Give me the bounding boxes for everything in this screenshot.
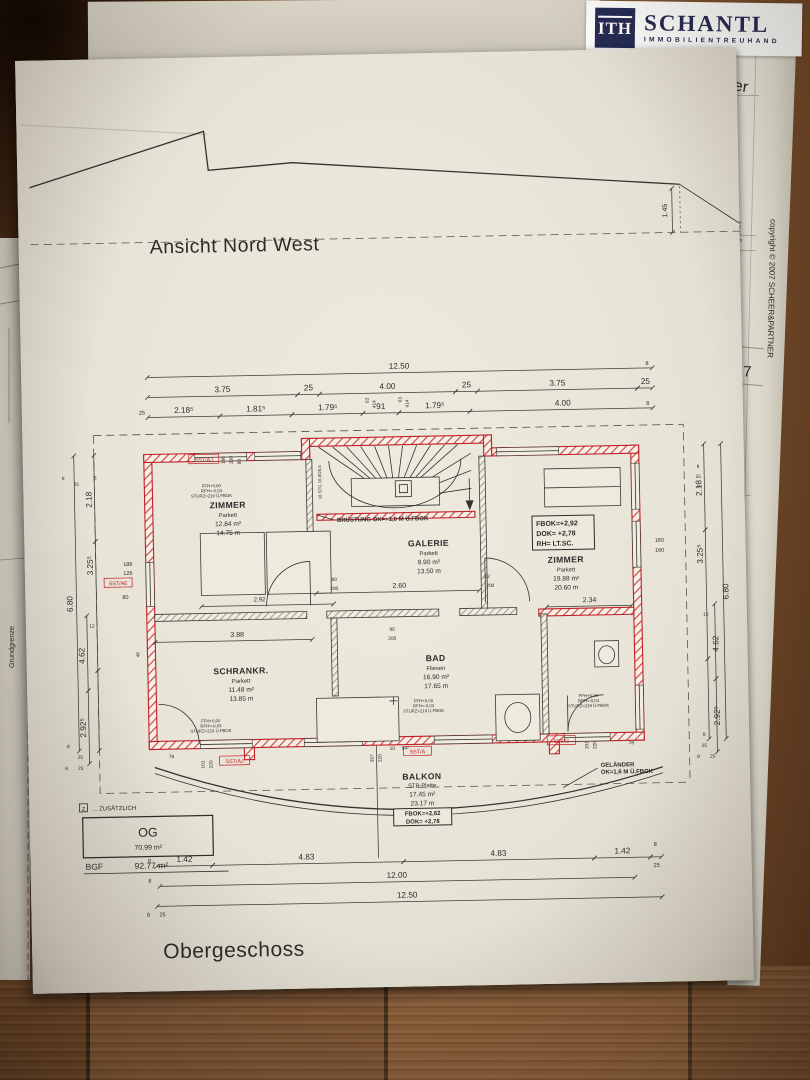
summary-bgf-label: BGF — [85, 861, 103, 871]
dim-label: 1.79⁵ — [425, 401, 445, 410]
dim-label: 25 — [139, 411, 145, 417]
summary-header: ... ZUSÄTZLICH — [92, 805, 136, 813]
dim-label: 25 — [702, 743, 708, 749]
right-dimensions: 6.80 2.18 3.25⁵ 12 4.62 2.92⁵ 8 25 8 8 2… — [653, 443, 734, 760]
area-summary: Z ... ZUSÄTZLICH OG 70.99 m² BGF 92.77 m… — [79, 801, 228, 874]
floor-plan-sheet: 1.45 Ansicht Nord West 12.50 3.75 25 4.0… — [15, 47, 754, 994]
level-box-line: DOK= +2,78 — [536, 530, 576, 538]
dim-label: 25 — [78, 755, 84, 761]
room-name: BAD — [426, 653, 446, 663]
dim-label: 8 — [65, 766, 68, 772]
dim-label: 414 — [405, 399, 411, 407]
dim-label: 3.75 — [214, 385, 231, 394]
dim-label: 6.80 — [65, 596, 74, 613]
room-finish: Parkett — [219, 513, 238, 519]
dim-label: 8 — [654, 842, 657, 848]
plan-drawing: 1.45 Ansicht Nord West 12.50 3.75 25 4.0… — [15, 47, 754, 994]
room-finish: Fliesen — [426, 666, 445, 672]
balkon-box-line: DOK= +2,78 — [406, 819, 440, 826]
dim-label: 160 — [655, 548, 664, 554]
dim-label: 1.81⁵ — [246, 404, 266, 413]
floor-title: Obergeschoss — [163, 938, 305, 964]
elevation-outline: 1.45 — [29, 121, 740, 245]
dim-label: 8 — [697, 464, 700, 470]
dim-label: 8 — [697, 484, 700, 490]
dim-label: 4.62 — [77, 647, 86, 664]
wall-tag: SST/A — [410, 749, 426, 755]
dim-label: 78 — [169, 754, 175, 760]
room-name: GALERIE — [408, 538, 449, 549]
level-note: STURZ=219 Ü.FBOK — [403, 708, 444, 714]
elevation-title: Ansicht Nord West — [150, 233, 320, 258]
dim-label: 25 — [641, 377, 651, 386]
stair-note: 18 STG 16,8/26,5 — [317, 465, 323, 500]
dim-label: 101 — [201, 760, 207, 768]
dim-label: 2.92⁵ — [79, 718, 88, 738]
balkon-box-line: FBOK=+2,62 — [405, 811, 441, 818]
dim-label: 3.75 — [549, 378, 566, 387]
dim-label: 4.00 — [555, 398, 572, 407]
dim-label: 1.42 — [614, 846, 631, 855]
dim-label: 12 — [703, 612, 709, 618]
room-finish: STB-Platte — [408, 783, 436, 790]
dim-label: 200 — [388, 636, 396, 642]
dim-label: 200 — [330, 586, 338, 592]
room-finish: Parkett — [557, 567, 576, 573]
dim-label: 12.50 — [389, 361, 410, 370]
wall-tag: SST/G — [553, 738, 569, 744]
room-area: 17.45 m² — [409, 791, 436, 799]
top-dimensions: 12.50 3.75 25 4.00 25 3.75 25 2.18⁵ 1.81… — [138, 357, 653, 418]
dim-label: 8 — [147, 913, 150, 919]
level-box: FBOK=+2,92 DOK= +2,78 RH= LT.SC. — [532, 515, 595, 550]
dim-label: 12 — [89, 624, 95, 630]
dim-label: 414 — [372, 400, 378, 408]
dim-label: 220 — [377, 754, 383, 762]
summary-level: OG — [138, 825, 158, 839]
dim-label: 8 — [703, 732, 706, 738]
dim-label: 8 — [67, 744, 70, 750]
room-finish: Parkett — [419, 551, 438, 557]
room-name: ZIMMER — [548, 554, 585, 565]
dim-label: 4.83 — [298, 852, 315, 861]
logo-text: SCHANTL IMMOBILIENTREUHAND — [644, 12, 780, 46]
room-name: ZIMMER — [209, 500, 246, 511]
logo-company-subtitle: IMMOBILIENTREUHAND — [644, 38, 780, 46]
dim-label: 25 — [654, 863, 660, 869]
dim-label: 25 — [710, 754, 716, 760]
dim-label: 25 — [695, 474, 701, 480]
dim-label: 25 — [462, 380, 472, 389]
dim-label: 63 — [398, 397, 404, 403]
dim-label: 25 — [74, 482, 80, 488]
summary-area: 70.99 m² — [134, 844, 162, 852]
elevation-height-dim: 1.45 — [662, 204, 669, 218]
room-perimeter: 13.85 m — [229, 696, 253, 703]
dim-label: 6.80 — [721, 583, 730, 600]
room-area: 9.90 m² — [418, 559, 441, 566]
wall-tag: SST/AJ — [195, 457, 214, 463]
wall-tag: SST/AE — [109, 581, 129, 587]
dim-label: 200 — [486, 583, 494, 589]
dim-label: 2.18⁵ — [174, 406, 194, 415]
logo-company-name: SCHANTL — [644, 12, 780, 37]
dim-label: 4.83 — [490, 849, 507, 858]
dim-label: 220 — [209, 760, 215, 768]
underlay-page-number: 7 — [743, 363, 752, 380]
dim-label: 2.18 — [84, 491, 93, 508]
logo-mark-letters: ITH — [598, 16, 633, 39]
dim-label: 25 — [304, 383, 314, 392]
dim-label: 8 — [646, 401, 649, 407]
grundgrenze-left-label: Grundgrenze — [7, 626, 16, 668]
dim-label: 2.92⁵ — [713, 706, 722, 726]
level-note: STURZ=219 Ü.FBOK — [568, 703, 609, 709]
wall-tag: SST/AJ — [225, 759, 244, 765]
dim-label: 3.25⁵ — [86, 556, 95, 576]
dim-label: 4.00 — [379, 382, 396, 391]
room-area: 16.90 m² — [423, 674, 450, 682]
dim-label: 25 — [159, 912, 165, 918]
dim-label: 126 — [123, 571, 132, 577]
bottom-dimensions: 1.42 4.83 4.83 1.42 8 25 12.00 12.50 8 8… — [146, 842, 663, 919]
dim-label: 10 — [390, 746, 396, 752]
dim-label: 2.34 — [583, 597, 597, 604]
dim-label: 220 — [592, 741, 598, 749]
dim-label: 2.92 — [254, 597, 266, 603]
gelaender-note: GELÄNDER — [601, 761, 635, 769]
level-note: STURZ=219 Ü.FBOK — [191, 493, 232, 499]
room-name: BALKON — [402, 771, 441, 782]
dim-label: 186 — [221, 456, 227, 464]
dim-label: 8 — [148, 879, 151, 885]
room-perimeter: 13.50 m — [417, 568, 441, 575]
dim-label: 12.50 — [397, 890, 418, 899]
dim-label: 220 — [229, 456, 235, 464]
dim-label: 186 — [123, 562, 132, 568]
level-note: STURZ=219 Ü.FBOK — [190, 728, 231, 734]
room-perimeter: 20.60 m — [554, 584, 578, 591]
staircase: 18 STG 16,8/26,5 — [317, 444, 474, 513]
dim-label: 160 — [655, 538, 664, 544]
level-box-line: FBOK=+2,92 — [536, 520, 578, 528]
room-perimeter: 17.65 m — [424, 683, 448, 690]
room-perimeter: 23.17 m — [410, 800, 434, 807]
room-area: 19.88 m² — [553, 575, 580, 583]
room-area: 12.84 m² — [215, 521, 242, 529]
dim-label: 63 — [365, 397, 371, 403]
underlay-copyright: copyright © 2007 SCHEER&PARTNER — [766, 219, 778, 358]
dim-label: 8 — [697, 754, 700, 760]
dim-label: 8 — [645, 361, 648, 367]
balkon-level-box: FBOK=+2,62 DOK= +2,78 — [394, 808, 452, 826]
dim-label: 90 — [389, 627, 395, 633]
dim-label: 12.00 — [386, 871, 407, 880]
level-box-line: RH= LT.SC. — [536, 540, 573, 548]
room-finish: Parkett — [232, 679, 251, 685]
dim-label: 25 — [78, 766, 84, 772]
dim-label: 8 — [94, 476, 97, 482]
logo-mark: ITH — [595, 7, 636, 48]
dim-label: 8 — [62, 476, 65, 482]
dim-label: 46 — [135, 652, 141, 658]
dim-label: 101 — [584, 741, 590, 749]
dim-label: 1.79⁵ — [318, 403, 338, 412]
room-perimeter: 14.75 m — [216, 530, 240, 537]
room-area: 11.48 m² — [228, 687, 254, 695]
dim-label: 2.60 — [392, 583, 406, 590]
dim-label: 4.62 — [711, 635, 720, 652]
summary-bgf-value: 92.77 m² — [134, 860, 168, 871]
gelaender-note: OK=1,6 M Ü.FBOK — [601, 768, 654, 776]
dim-label: 80 — [237, 459, 243, 465]
dim-label: 80 — [331, 577, 337, 583]
dim-label: 397 — [369, 754, 375, 762]
dim-label: 3.88 — [230, 632, 244, 639]
room-name: SCHRANKR. — [213, 665, 268, 676]
dim-label: 12 — [484, 574, 490, 580]
dim-label: 78 — [629, 740, 635, 746]
dim-label: 3.25⁵ — [696, 544, 705, 564]
dim-label: 80 — [122, 595, 128, 601]
